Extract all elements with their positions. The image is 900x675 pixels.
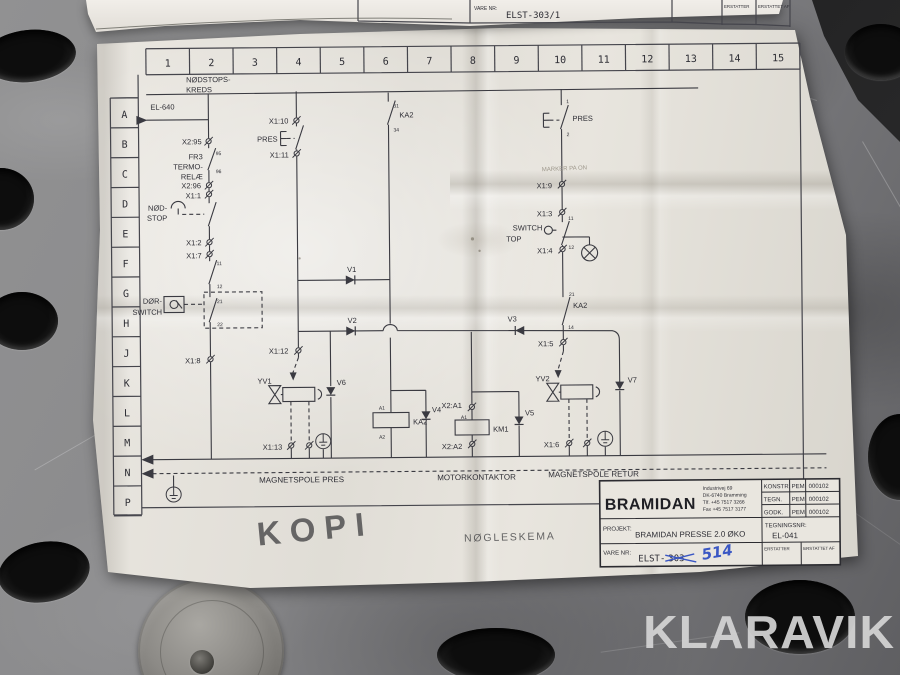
klaravik-watermark: KLARAVIK (643, 605, 895, 659)
second-sheet (0, 0, 900, 675)
photo-scene: VARE NR: ELST-303/1 ERSTATTER ERSTATTET … (0, 0, 900, 675)
